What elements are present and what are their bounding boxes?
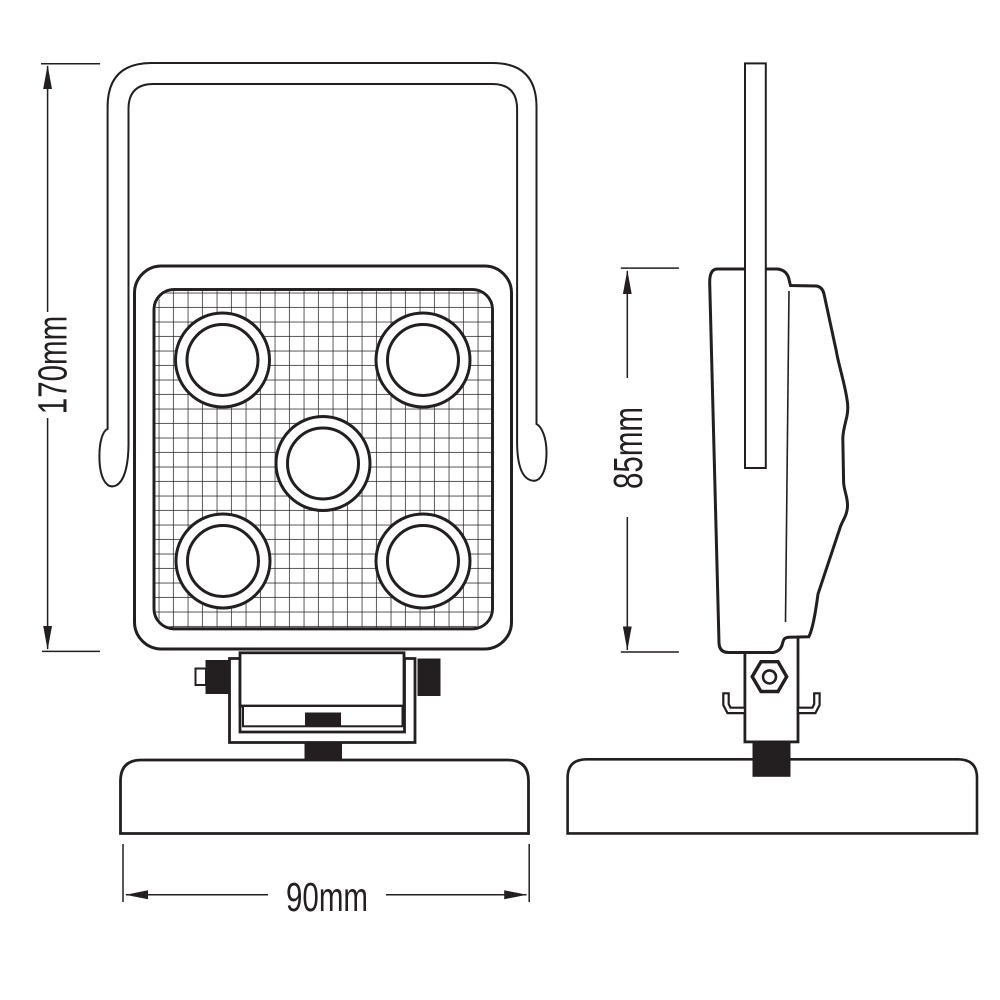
svg-text:85mm: 85mm	[605, 407, 651, 489]
svg-text:90mm: 90mm	[286, 874, 368, 920]
svg-text:170mm: 170mm	[30, 316, 76, 414]
